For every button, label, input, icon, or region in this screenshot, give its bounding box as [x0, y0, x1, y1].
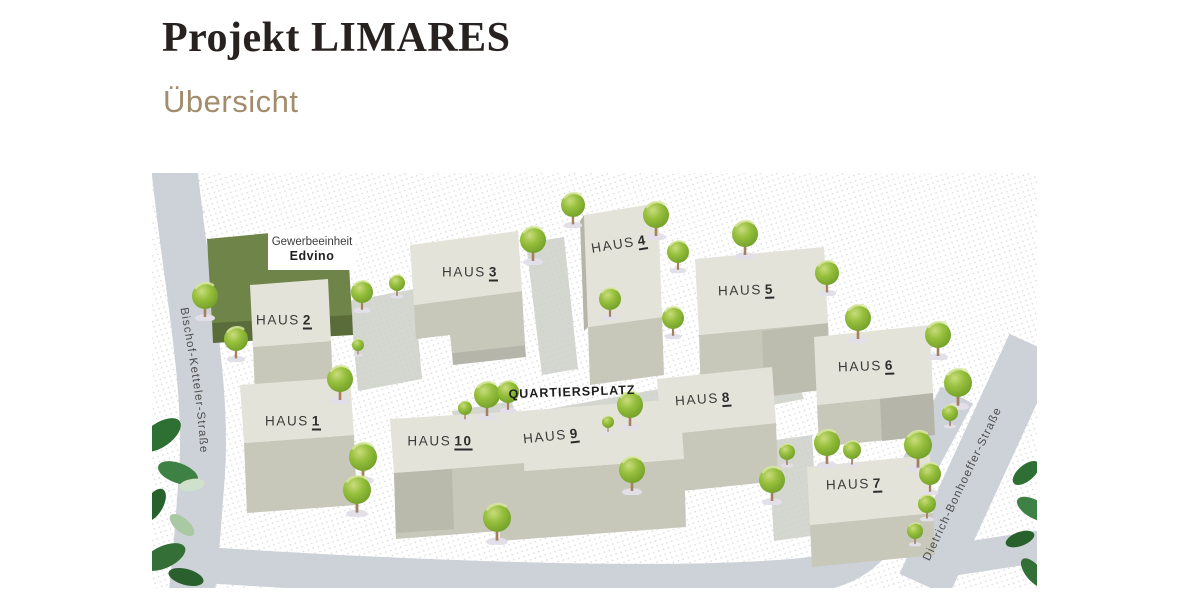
haus-6-building[interactable]: [814, 325, 935, 447]
haus-7-label[interactable]: HAUS7: [826, 476, 883, 493]
commercial-unit-type: Gewerbeeinheit: [272, 235, 353, 249]
site-plan-map: Bischof-Ketteler-Straße Dietrich-Bonhoef…: [152, 173, 1037, 588]
haus-4-building[interactable]: [580, 203, 664, 385]
haus-2-label[interactable]: HAUS2: [256, 313, 312, 328]
haus-10-label[interactable]: HAUS10: [407, 434, 472, 449]
haus-6-label[interactable]: HAUS6: [838, 358, 895, 375]
page-title: Projekt LIMARES: [162, 14, 511, 62]
haus-5-label[interactable]: HAUS5: [718, 282, 775, 299]
page-subtitle: Übersicht: [163, 84, 298, 120]
haus-3-label[interactable]: HAUS3: [442, 265, 498, 280]
commercial-unit-name: Edvino: [290, 249, 335, 265]
haus-1-label[interactable]: HAUS1: [265, 414, 321, 429]
haus-2-building[interactable]: [250, 279, 333, 393]
commercial-unit-label[interactable]: Gewerbeeinheit Edvino: [268, 230, 356, 270]
